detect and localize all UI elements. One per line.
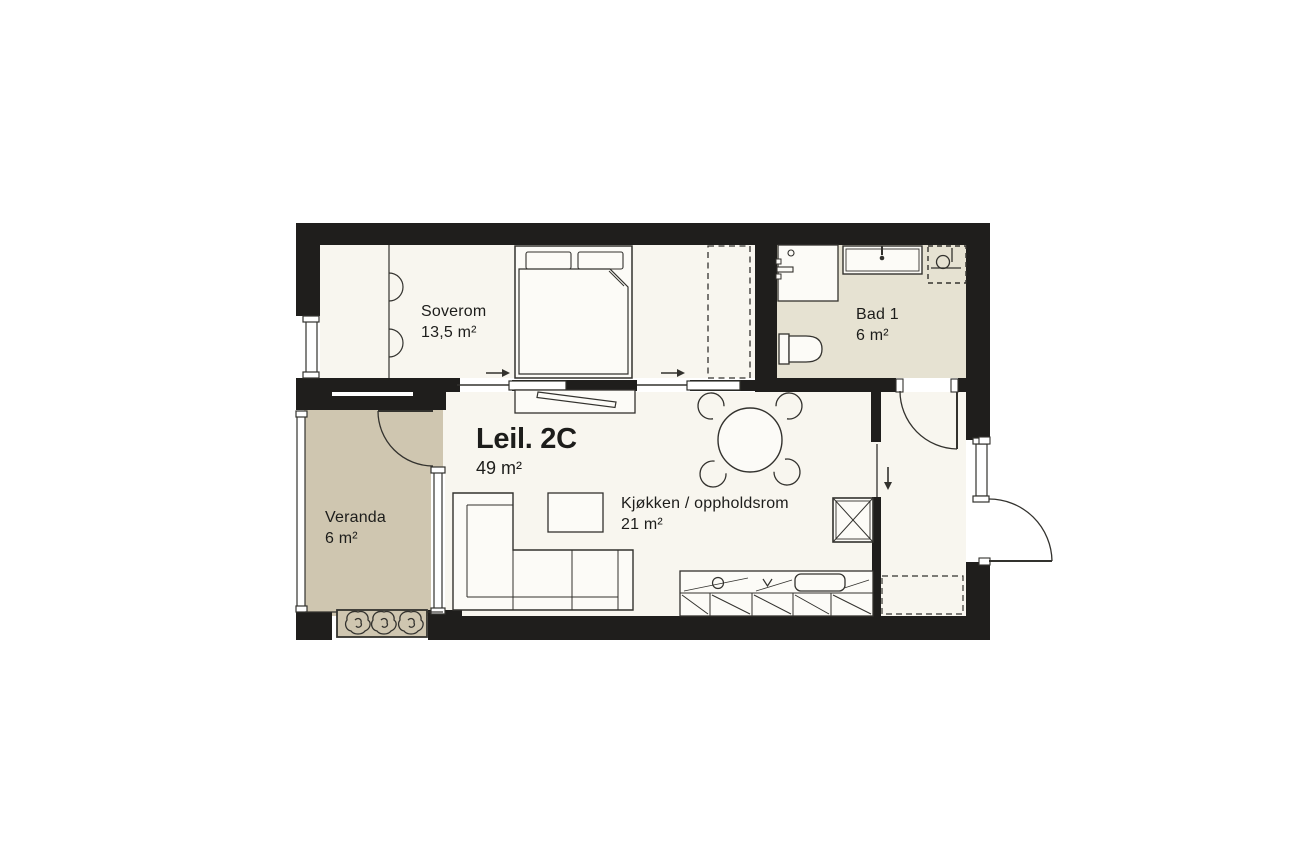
veranda-items xyxy=(337,610,427,637)
floors xyxy=(304,245,966,616)
tv-bench-icon xyxy=(515,390,635,413)
pillow xyxy=(578,252,623,269)
floor-plan: Leil. 2C 49 m² Soverom 13,5 m² Bad 1 6 m… xyxy=(0,0,1300,866)
hall-window-icon xyxy=(966,438,990,502)
veranda-window-icon xyxy=(431,467,445,614)
toilet-icon xyxy=(779,334,822,364)
veranda-label: Veranda 6 m² xyxy=(325,507,386,549)
bathtub-icon xyxy=(843,246,922,274)
apartment-title: Leil. 2C 49 m² xyxy=(476,424,577,479)
sliding-door-panel xyxy=(509,381,566,390)
kitchen-living-name: Kjøkken / oppholdsrom xyxy=(621,493,789,514)
bedroom-area: 13,5 m² xyxy=(421,322,486,343)
bedroom-name: Soverom xyxy=(421,301,486,322)
tall-cabinet-icon xyxy=(833,498,873,542)
bathroom-label: Bad 1 6 m² xyxy=(856,304,899,346)
sliding-door-panel xyxy=(687,381,740,390)
vanity-icon xyxy=(776,245,838,301)
kitchen-counter-icon xyxy=(680,571,873,616)
floor-plan-drawing xyxy=(0,0,1300,866)
bathroom-name: Bad 1 xyxy=(856,304,899,325)
veranda-area: 6 m² xyxy=(325,528,386,549)
kitchen-living-label: Kjøkken / oppholdsrom 21 m² xyxy=(621,493,789,535)
kitchen-living-area: 21 m² xyxy=(621,514,789,535)
veranda-name: Veranda xyxy=(325,507,386,528)
bedroom-window-icon xyxy=(296,316,320,378)
kitchen-sink-icon xyxy=(795,574,845,591)
duvet xyxy=(519,269,628,374)
veranda-railing-icon xyxy=(296,411,307,612)
apartment-area: 49 m² xyxy=(476,457,577,479)
bedroom-label: Soverom 13,5 m² xyxy=(421,301,486,343)
apartment-name: Leil. 2C xyxy=(476,424,577,454)
bathroom-area: 6 m² xyxy=(856,325,899,346)
pillow xyxy=(526,252,571,269)
planter-icon xyxy=(337,610,427,637)
bed-icon xyxy=(515,246,632,378)
coffee-table-icon xyxy=(548,493,603,532)
